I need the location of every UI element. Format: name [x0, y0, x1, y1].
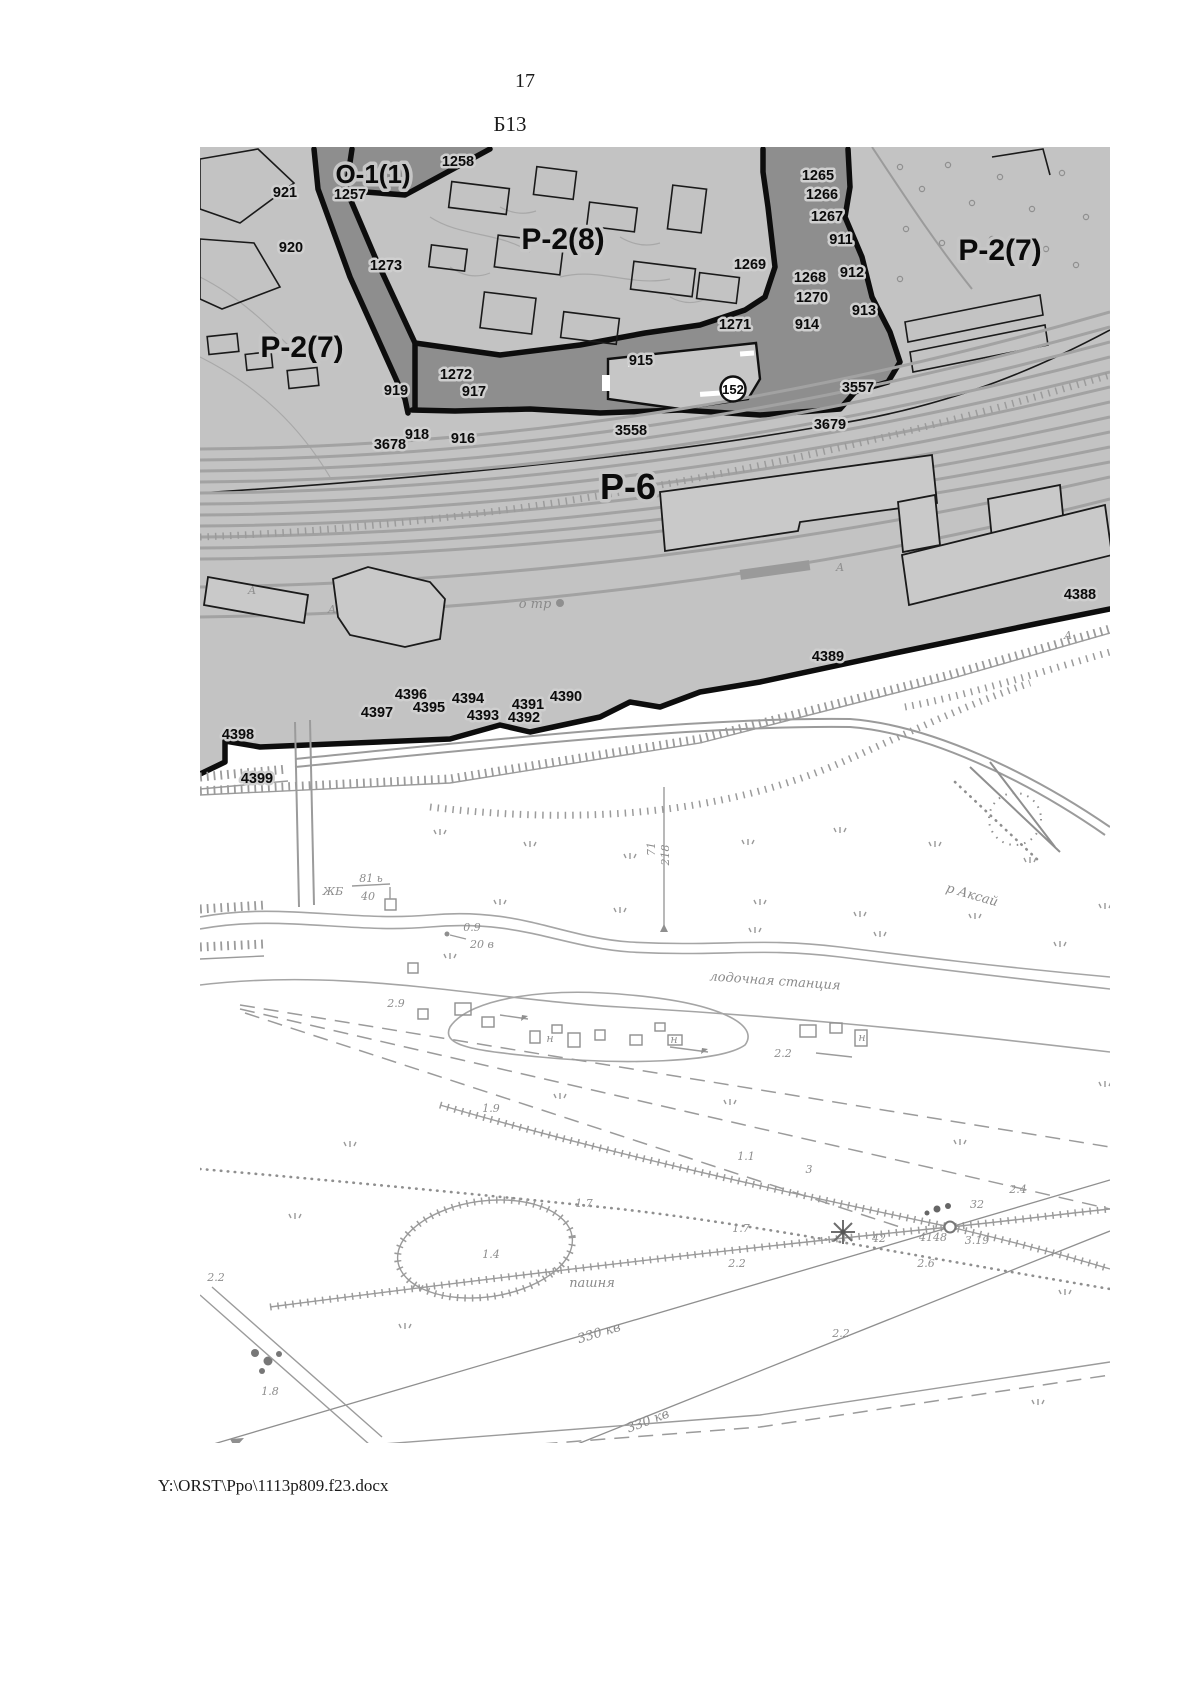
letter-a-mark: А [835, 561, 844, 574]
parcel-label-911: 911 [829, 232, 852, 248]
boat-station-label: лодочная станция [709, 969, 841, 993]
zone-label-r2-7-right: Р-2(7) [958, 234, 1041, 267]
spot-1-9: 1.9 [482, 1102, 500, 1115]
spot-42: 42 [871, 1232, 886, 1245]
site-152-marker: 152 [721, 377, 746, 402]
spot-1-8: 1.8 [261, 1385, 279, 1398]
parcel-label-1258: 1258 [442, 154, 474, 170]
parcel-label-916: 916 [451, 431, 475, 447]
parcel-label-914: 914 [795, 317, 819, 333]
parcel-label-3558: 3558 [615, 423, 647, 439]
spot-2-2: 2.2 [831, 1327, 850, 1340]
map-sheet-title: Б13 [0, 112, 1020, 137]
parcel-label-1267: 1267 [811, 209, 843, 225]
parcel-label-1266: 1266 [806, 187, 838, 203]
parcel-label-4389: 4389 [812, 649, 844, 665]
arable-label: пашня [569, 1276, 615, 1291]
zone-label-o1: О-1(1) [335, 159, 410, 189]
zoning-map: О-1(1) Р-2(8) Р-2(7) Р-2(7) Р-6 921 1258… [200, 147, 1110, 1443]
otr-dot [556, 599, 564, 607]
parcel-label-4393: 4393 [467, 708, 499, 724]
spot-32: 32 [970, 1198, 984, 1211]
parcel-label-1273: 1273 [370, 258, 402, 274]
spot-3-19: 3.19 [965, 1234, 990, 1247]
spot-20v: 20 в [469, 938, 494, 951]
parcel-label-4388: 4388 [1064, 587, 1096, 603]
letter-n-mark: н [546, 1032, 553, 1045]
parcel-label-913: 913 [852, 303, 876, 319]
parcel-label-918: 918 [405, 427, 429, 443]
spot-218: 218 [659, 845, 672, 867]
spot-2-4: 2.4 [1008, 1183, 1027, 1196]
parcel-label-4397: 4397 [361, 705, 393, 721]
letter-n-mark: н [858, 1031, 865, 1044]
zone-label-r2-7-left: Р-2(7) [260, 331, 343, 364]
parcel-label-1271: 1271 [719, 317, 751, 333]
spot-2-9: 2.9 [386, 997, 405, 1010]
parcel-label-4399: 4399 [241, 771, 273, 787]
parcel-label-4396: 4396 [395, 687, 427, 703]
parcel-label-4390: 4390 [550, 689, 582, 705]
parcel-label-4394: 4394 [452, 691, 484, 707]
letter-a-mark: А [327, 603, 336, 616]
bridge-abbr: ЖБ [322, 885, 343, 898]
parcel-label-912: 912 [840, 265, 864, 281]
site-152-label: 152 [722, 382, 744, 397]
letter-n-mark: н [670, 1033, 677, 1046]
spot-1-4: 1.4 [482, 1248, 500, 1261]
parcel-label-3557: 3557 [842, 380, 874, 396]
spot-71: 71 [645, 842, 658, 856]
spot-4148: 4148 [918, 1231, 947, 1244]
parcel-label-1272: 1272 [440, 367, 472, 383]
parcel-label-915: 915 [629, 353, 653, 369]
spot-2-2: 2.2 [727, 1257, 746, 1270]
letter-a-mark: А [1063, 629, 1072, 642]
letter-a-mark: А [247, 584, 256, 597]
spot-3: 3 [806, 1163, 813, 1176]
parcel-label-4398: 4398 [222, 727, 254, 743]
spot-1-1: 1.1 [737, 1150, 755, 1163]
parcel-label-919: 919 [384, 383, 408, 399]
spot-1-7: 1.7 [732, 1222, 750, 1235]
spot-0-9: 0.9 [463, 921, 481, 934]
zone-label-r6: Р-6 [600, 466, 656, 507]
parcel-label-1270: 1270 [796, 290, 828, 306]
parcel-label-1257: 1257 [334, 187, 366, 203]
document-file-path: Y:\ORST\Ppo\1113p809.f23.docx [158, 1476, 388, 1496]
bridge-load-top: 81 ь [359, 872, 382, 885]
parcel-label-1269: 1269 [734, 257, 766, 273]
floodplain [200, 629, 1110, 1443]
zone-label-r2-8: Р-2(8) [521, 223, 604, 256]
parcel-label-1265: 1265 [802, 168, 834, 184]
spot-2-6: 2.6 [916, 1257, 935, 1270]
spot-2-2: 2.2 [206, 1271, 225, 1284]
parcel-label-3679: 3679 [814, 417, 846, 433]
spot-2-2: 2.2 [773, 1047, 792, 1060]
power-line-label-2: 330 кв [625, 1407, 672, 1437]
parcel-label-920: 920 [279, 240, 303, 256]
power-line-label-1: 330 кв [576, 1320, 623, 1347]
parcel-label-4392: 4392 [508, 710, 540, 726]
parcel-label-921: 921 [273, 185, 297, 201]
otr-label: о тр [519, 597, 552, 612]
parcel-label-917: 917 [462, 384, 486, 400]
page-number: 17 [0, 70, 1050, 93]
bridge-load-bottom: 40 [360, 890, 375, 903]
river-name: р Аксай [944, 881, 1000, 910]
spot-1-7: 1.7 [575, 1197, 593, 1210]
parcel-label-3678: 3678 [374, 437, 406, 453]
parcel-label-1268: 1268 [794, 270, 826, 286]
